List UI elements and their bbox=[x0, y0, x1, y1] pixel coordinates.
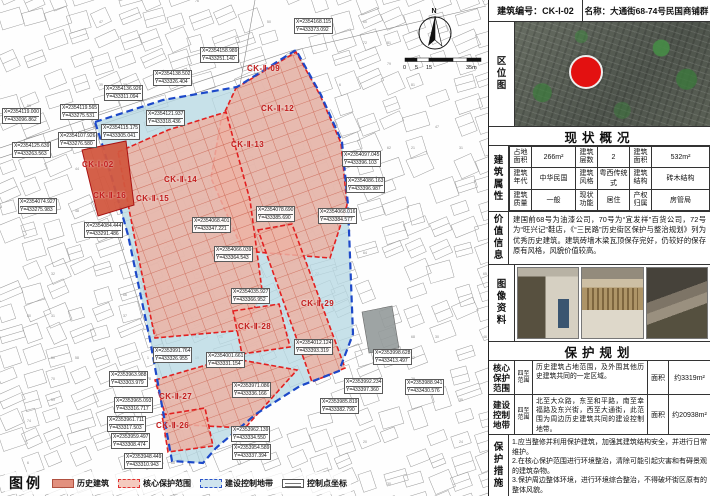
svg-text:24: 24 bbox=[123, 440, 127, 444]
svg-text:74: 74 bbox=[27, 419, 31, 423]
attr-key: 建筑年代 bbox=[510, 168, 532, 189]
north-arrow-icon: N bbox=[419, 8, 451, 49]
legend-item-historic: 历史建筑 bbox=[52, 478, 109, 489]
legend-item-core: 核心保护范围 bbox=[118, 478, 191, 489]
svg-text:70: 70 bbox=[51, 377, 55, 381]
panel-header: 建筑编号：CK-Ⅰ-02 名称：大通街68-74号民国商铺群 bbox=[489, 0, 710, 22]
control-zone-text: 北至大众路，东至和平路，南至幸福路及东兴街，西至大通街，此范围为周边历史建筑共同… bbox=[533, 395, 647, 434]
protection-title: 保护规划 bbox=[489, 342, 710, 361]
core-scope-label: 核心保护范围 bbox=[489, 361, 515, 394]
svg-text:62: 62 bbox=[387, 146, 391, 150]
location-map-row: 区位图 bbox=[489, 22, 710, 127]
control-zone-row: 建设控制地带 四至范围 北至大众路，东至和平路，南至幸福路及东兴街，西至大通街，… bbox=[489, 395, 710, 435]
value-info-text: 建国前68号为油漆公司，70号为“宜发祥”百货公司，72号为“旺兴记”鞋店，《“… bbox=[509, 212, 710, 264]
control-zone-swatch bbox=[200, 479, 222, 488]
svg-text:32: 32 bbox=[51, 272, 55, 276]
svg-text:64: 64 bbox=[363, 251, 367, 255]
control-zone-label: 建设控制地带 bbox=[489, 395, 515, 434]
measure-item: 1.应当整修并利用保护建筑，加强其建筑结构安全，并进行日常维护。 bbox=[512, 438, 707, 457]
image-material-label: 图像资料 bbox=[489, 265, 515, 341]
svg-text:0: 0 bbox=[403, 65, 406, 71]
table-row: 建筑质量 一般 现状功能 居住 产权归属 房管局 bbox=[510, 189, 710, 210]
value-info-label: 价值信息 bbox=[489, 212, 509, 264]
status-title: 现状概况 bbox=[489, 127, 710, 146]
svg-text:46: 46 bbox=[483, 335, 487, 339]
attr-value: 532m² bbox=[652, 147, 710, 168]
svg-text:65: 65 bbox=[483, 272, 487, 276]
attr-value: 粤西传统式 bbox=[598, 168, 630, 189]
satellite-image bbox=[515, 22, 710, 126]
attr-value: 房管局 bbox=[652, 189, 710, 210]
svg-text:35m: 35m bbox=[466, 65, 477, 71]
svg-text:31: 31 bbox=[51, 314, 55, 318]
svg-text:48: 48 bbox=[75, 209, 79, 213]
svg-text:76: 76 bbox=[195, 0, 199, 3]
svg-text:66: 66 bbox=[123, 293, 127, 297]
svg-text:35: 35 bbox=[99, 83, 103, 87]
svg-text:50: 50 bbox=[267, 20, 271, 24]
svg-text:15: 15 bbox=[426, 65, 432, 71]
svg-text:22: 22 bbox=[99, 230, 103, 234]
core-protection-row: 核心保护范围 四至范围 历史建筑占地范围，及外围其他历史建筑共同的一定区域。 面… bbox=[489, 361, 710, 395]
map-canvas: 4676747506045728179353368159705775476137… bbox=[0, 0, 488, 496]
building-photo bbox=[517, 267, 579, 339]
svg-text:62: 62 bbox=[411, 356, 415, 360]
svg-text:60: 60 bbox=[363, 20, 367, 24]
measure-item: 2.在核心保护范围进行环境整治，清除可能引起灾害和有碍景观的建筑杂物。 bbox=[512, 457, 707, 476]
svg-text:21: 21 bbox=[411, 146, 415, 150]
svg-text:5: 5 bbox=[415, 65, 418, 71]
legend-title: 图例 bbox=[9, 473, 43, 493]
area-value: 约3319m² bbox=[669, 361, 710, 394]
location-map-label: 区位图 bbox=[489, 22, 515, 126]
svg-text:35: 35 bbox=[459, 398, 463, 402]
svg-text:72: 72 bbox=[363, 41, 367, 45]
svg-text:1: 1 bbox=[147, 356, 149, 360]
svg-text:29: 29 bbox=[411, 377, 415, 381]
svg-text:N: N bbox=[432, 8, 437, 15]
value-info-row: 价值信息 建国前68号为油漆公司，70号为“宜发祥”百货公司，72号为“旺兴记”… bbox=[489, 212, 710, 265]
subject-building bbox=[82, 141, 134, 216]
svg-text:60: 60 bbox=[51, 356, 55, 360]
svg-text:47: 47 bbox=[435, 125, 439, 129]
building-attributes: 建筑属性 占地面积 266m² 建筑层数 2 建筑面积 532m² 建筑年代 中… bbox=[489, 146, 710, 212]
svg-text:78: 78 bbox=[147, 377, 151, 381]
attr-key: 建筑层数 bbox=[576, 147, 598, 168]
svg-text:30: 30 bbox=[435, 335, 439, 339]
attr-key: 建筑结构 bbox=[630, 168, 652, 189]
protection-measures-row: 保护措施 1.应当整修并利用保护建筑，加强其建筑结构安全，并进行日常维护。 2.… bbox=[489, 435, 710, 496]
svg-text:31: 31 bbox=[459, 146, 463, 150]
image-material-row: 图像资料 bbox=[489, 265, 710, 342]
core-scope-text: 历史建筑占地范围，及外围其他历史建筑共同的一定区域。 bbox=[533, 361, 647, 394]
attr-value: 砖木结构 bbox=[652, 168, 710, 189]
attr-value: 中华民国 bbox=[532, 168, 576, 189]
attributes-table: 占地面积 266m² 建筑层数 2 建筑面积 532m² 建筑年代 中华民国 建… bbox=[509, 146, 710, 211]
building-photo bbox=[646, 267, 708, 339]
svg-text:20: 20 bbox=[363, 440, 367, 444]
svg-text:47: 47 bbox=[99, 20, 103, 24]
attr-key: 产权归属 bbox=[630, 189, 652, 210]
svg-text:24: 24 bbox=[459, 440, 463, 444]
area-key: 面积 bbox=[647, 361, 669, 394]
table-row: 占地面积 266m² 建筑层数 2 建筑面积 532m² bbox=[510, 147, 710, 168]
svg-text:81: 81 bbox=[411, 83, 415, 87]
svg-text:30: 30 bbox=[387, 482, 391, 486]
measure-item: 3.保护周边整体环境，进行环境综合整治，不得破坏街区原有的整体风貌。 bbox=[512, 476, 707, 495]
measures-text: 1.应当整修并利用保护建筑，加强其建筑结构安全，并进行日常维护。 2.在核心保护… bbox=[509, 435, 710, 496]
building-photo bbox=[581, 267, 643, 339]
table-row: 建筑年代 中华民国 建筑风格 粤西传统式 建筑结构 砖木结构 bbox=[510, 168, 710, 189]
legend-label: 建设控制地带 bbox=[225, 478, 273, 489]
attr-key: 建筑面积 bbox=[630, 147, 652, 168]
photo-strip bbox=[515, 265, 710, 341]
site-marker bbox=[569, 55, 603, 89]
control-point-swatch bbox=[282, 479, 304, 488]
svg-text:58: 58 bbox=[75, 356, 79, 360]
attr-key: 建筑风格 bbox=[576, 168, 598, 189]
legend-item-control: 建设控制地带 bbox=[200, 478, 273, 489]
svg-text:59: 59 bbox=[51, 398, 55, 402]
attr-value: 266m² bbox=[532, 147, 576, 168]
map-legend: 图例 历史建筑 核心保护范围 建设控制地带 控制点坐标 bbox=[5, 472, 351, 494]
core-protection-swatch bbox=[118, 479, 140, 488]
gray-building bbox=[362, 306, 399, 353]
svg-text:44: 44 bbox=[75, 167, 79, 171]
svg-text:81: 81 bbox=[387, 41, 391, 45]
legend-item-point: 控制点坐标 bbox=[282, 478, 347, 489]
building-number: 建筑编号：CK-Ⅰ-02 bbox=[489, 0, 583, 21]
building-name: 名称：大通街68-74号民国商铺群 bbox=[583, 0, 710, 21]
legend-label: 核心保护范围 bbox=[143, 478, 191, 489]
attributes-group-label: 建筑属性 bbox=[489, 146, 509, 211]
attr-value: 2 bbox=[598, 147, 630, 168]
attr-key: 现状功能 bbox=[576, 189, 598, 210]
four-boundaries-label: 四至范围 bbox=[515, 395, 533, 434]
measures-label: 保护措施 bbox=[489, 435, 509, 496]
svg-text:80: 80 bbox=[27, 314, 31, 318]
historic-building-swatch bbox=[52, 479, 74, 488]
svg-text:37: 37 bbox=[123, 314, 127, 318]
scale-bar: 051535m bbox=[403, 58, 481, 71]
svg-text:7: 7 bbox=[483, 0, 485, 3]
svg-text:59: 59 bbox=[27, 104, 31, 108]
legend-label: 历史建筑 bbox=[77, 478, 109, 489]
area-value: 约20938m² bbox=[669, 395, 710, 434]
legend-label: 控制点坐标 bbox=[307, 478, 347, 489]
svg-text:48: 48 bbox=[123, 398, 127, 402]
svg-text:6: 6 bbox=[27, 461, 29, 465]
planning-sheet: 4676747506045728179353368159705775476137… bbox=[0, 0, 710, 496]
area-key: 面积 bbox=[647, 395, 669, 434]
attr-key: 占地面积 bbox=[510, 147, 532, 168]
svg-text:79: 79 bbox=[387, 62, 391, 66]
attr-value: 居住 bbox=[598, 189, 630, 210]
protection-plan-map: 4676747506045728179353368159705775476137… bbox=[0, 0, 488, 496]
four-boundaries-label: 四至范围 bbox=[515, 361, 533, 394]
attr-key: 建筑质量 bbox=[510, 189, 532, 210]
svg-text:33: 33 bbox=[123, 83, 127, 87]
svg-text:6: 6 bbox=[339, 83, 341, 87]
svg-text:68: 68 bbox=[411, 335, 415, 339]
info-panel: 建筑编号：CK-Ⅰ-02 名称：大通街68-74号民国商铺群 区位图 现状概况 … bbox=[488, 0, 710, 496]
attr-value: 一般 bbox=[532, 189, 576, 210]
